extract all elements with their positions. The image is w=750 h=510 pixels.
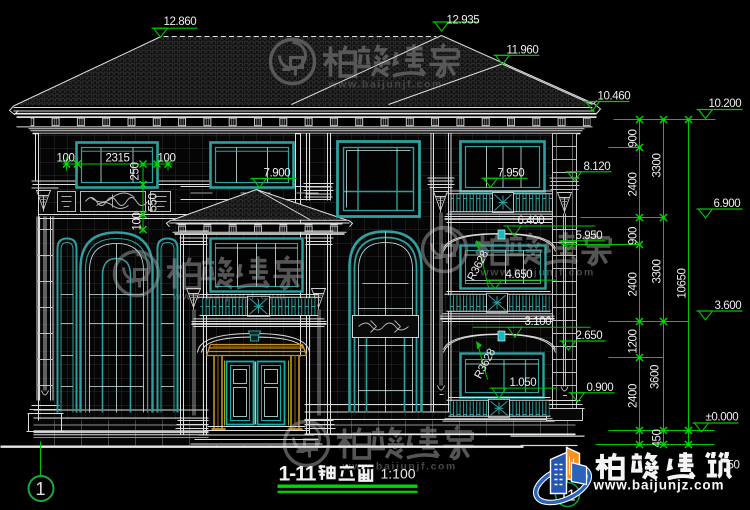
svg-text:450: 450 — [652, 430, 664, 448]
svg-text:3300: 3300 — [652, 260, 664, 284]
svg-text:2.650: 2.650 — [576, 330, 603, 342]
svg-text:10650: 10650 — [677, 269, 689, 299]
svg-text:0.900: 0.900 — [587, 382, 614, 394]
svg-text:3.100: 3.100 — [525, 316, 552, 328]
svg-text:900: 900 — [628, 227, 640, 245]
svg-text:7.900: 7.900 — [264, 168, 291, 180]
svg-text:100: 100 — [57, 153, 75, 165]
svg-text:900: 900 — [628, 130, 640, 148]
svg-text:100: 100 — [158, 153, 176, 165]
svg-text:5.950: 5.950 — [576, 230, 603, 242]
svg-text:100: 100 — [132, 213, 144, 231]
svg-text:6.900: 6.900 — [714, 198, 741, 210]
svg-text:250: 250 — [130, 163, 142, 181]
svg-text:3600: 3600 — [650, 365, 662, 389]
svg-text:3.600: 3.600 — [715, 300, 742, 312]
svg-text:3300: 3300 — [652, 154, 664, 178]
svg-text:10.200: 10.200 — [709, 98, 742, 110]
svg-text:1-11: 1-11 — [279, 463, 317, 486]
svg-text:±0.000: ±0.000 — [706, 412, 739, 424]
svg-text:8.120: 8.120 — [584, 161, 611, 173]
svg-text:2315: 2315 — [106, 153, 130, 165]
svg-text:1.050: 1.050 — [510, 377, 537, 389]
svg-text:www.baijunjz.com: www.baijunjz.com — [593, 478, 725, 493]
svg-text:12.935: 12.935 — [447, 15, 480, 27]
svg-text:2400: 2400 — [628, 173, 640, 197]
svg-text:11.960: 11.960 — [507, 45, 539, 57]
svg-text:2400: 2400 — [628, 384, 640, 408]
svg-text:1:100: 1:100 — [381, 466, 416, 482]
svg-text:7.950: 7.950 — [498, 167, 525, 179]
svg-text:2400: 2400 — [628, 273, 640, 297]
svg-text:4.650: 4.650 — [506, 269, 533, 281]
svg-text:12.860: 12.860 — [164, 16, 197, 28]
svg-text:1200: 1200 — [628, 330, 640, 354]
svg-text:550: 550 — [148, 194, 160, 212]
svg-text:6.400: 6.400 — [518, 215, 545, 227]
svg-text:10.460: 10.460 — [598, 91, 631, 103]
svg-text:1: 1 — [35, 479, 45, 499]
